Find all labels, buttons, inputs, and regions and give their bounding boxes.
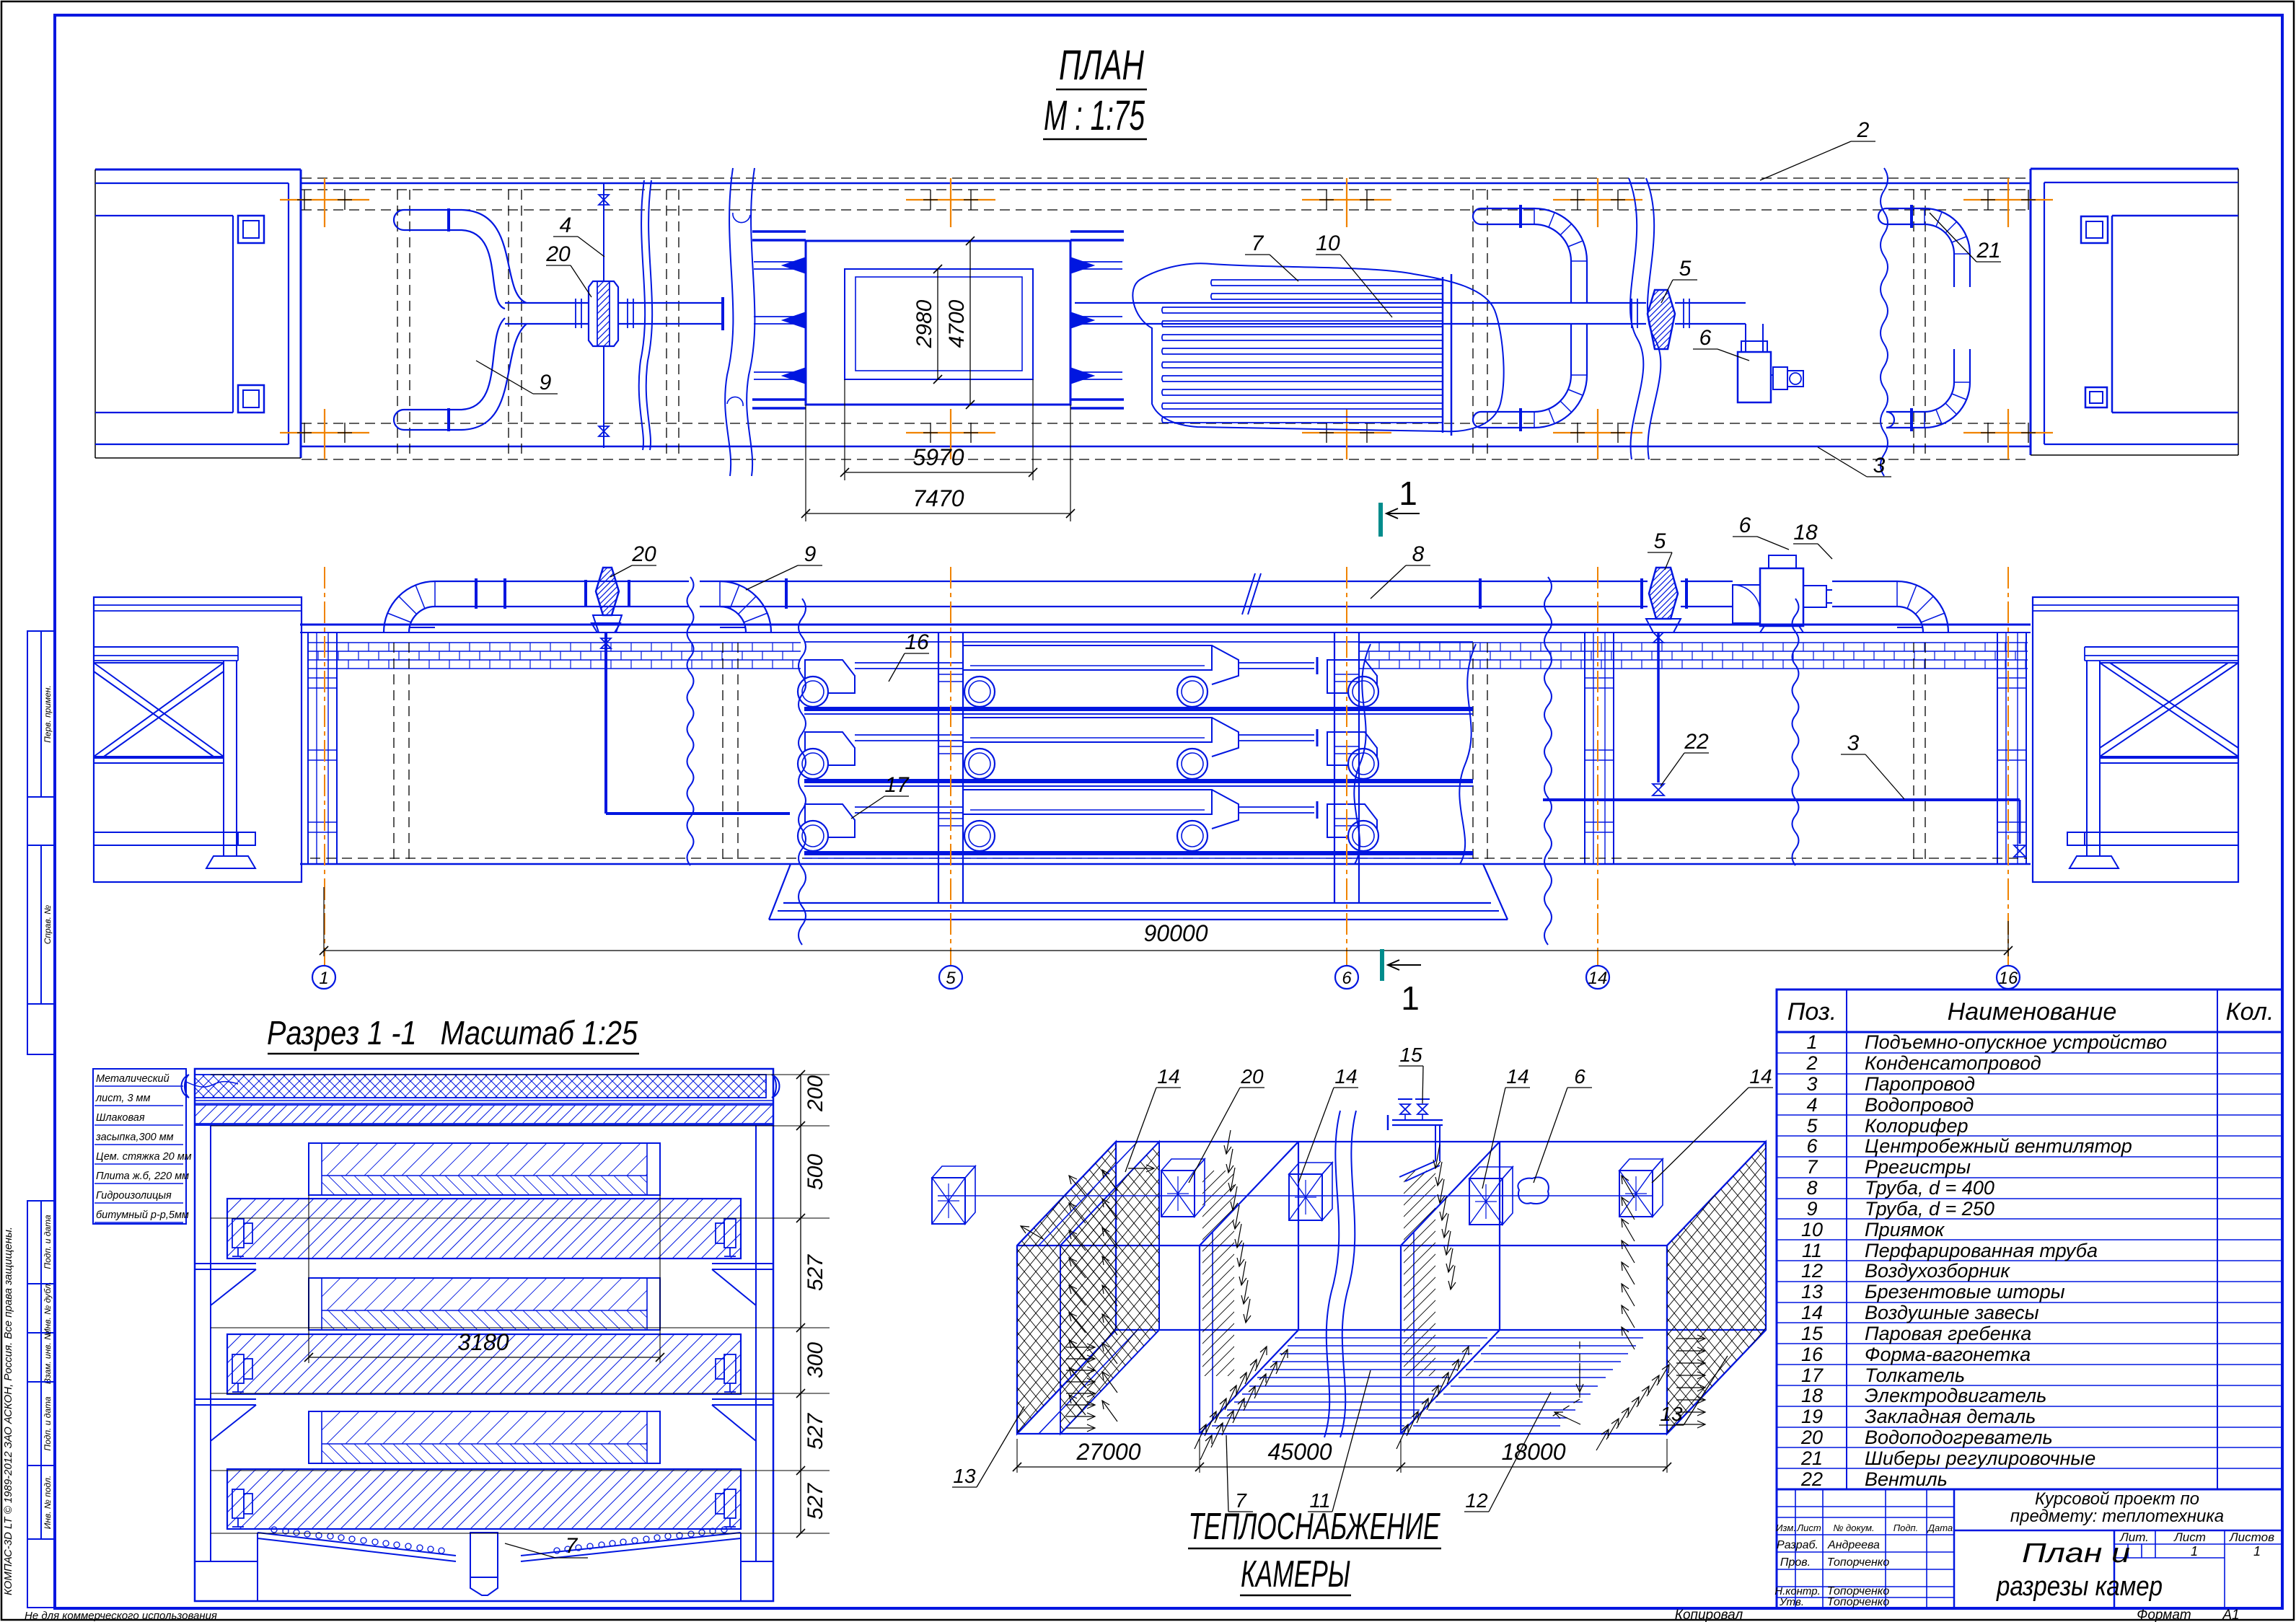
svg-text:18: 18 bbox=[1801, 1385, 1823, 1406]
svg-text:Изм.: Изм. bbox=[1776, 1522, 1796, 1533]
svg-text:Разрез 1 -1 Масштаб 1:25: Разрез 1 -1 Масштаб 1:25 bbox=[267, 1014, 638, 1052]
svg-text:ТЕПЛОСНАБЖЕНИЕ: ТЕПЛОСНАБЖЕНИЕ bbox=[1189, 1506, 1441, 1548]
svg-text:500: 500 bbox=[804, 1154, 827, 1190]
svg-text:16: 16 bbox=[1999, 969, 2018, 988]
svg-text:Взам. инв. №: Взам. инв. № bbox=[43, 1331, 53, 1384]
svg-text:18: 18 bbox=[1793, 521, 1818, 545]
svg-text:Дата: Дата bbox=[1927, 1522, 1953, 1533]
svg-text:13: 13 bbox=[953, 1465, 976, 1487]
svg-text:Цем. стяжка 20 мм: Цем. стяжка 20 мм bbox=[96, 1151, 192, 1163]
svg-text:Вентиль: Вентиль bbox=[1865, 1468, 1948, 1490]
svg-text:Колорифер: Колорифер bbox=[1865, 1115, 1969, 1137]
svg-text:14: 14 bbox=[1588, 969, 1608, 988]
svg-text:22: 22 bbox=[1684, 730, 1709, 754]
svg-text:20: 20 bbox=[631, 542, 656, 566]
svg-text:6: 6 bbox=[1739, 514, 1751, 537]
svg-text:9: 9 bbox=[804, 542, 817, 566]
svg-text:1: 1 bbox=[319, 969, 328, 988]
svg-text:2980: 2980 bbox=[912, 299, 936, 348]
svg-text:Инв. № подл.: Инв. № подл. bbox=[43, 1476, 53, 1529]
svg-text:6: 6 bbox=[1574, 1065, 1585, 1088]
svg-text:Инв. № дубл.: Инв. № дубл. bbox=[43, 1282, 53, 1335]
svg-text:12: 12 bbox=[1801, 1260, 1823, 1282]
svg-text:Закладная деталь: Закладная деталь bbox=[1865, 1406, 2036, 1427]
svg-text:Форма-вагонетка: Форма-вагонетка bbox=[1865, 1344, 2031, 1365]
svg-text:6: 6 bbox=[1342, 969, 1352, 988]
svg-text:разрезы камер: разрезы камер bbox=[1996, 1572, 2163, 1602]
svg-text:14: 14 bbox=[1801, 1302, 1823, 1323]
svg-text:КАМЕРЫ: КАМЕРЫ bbox=[1241, 1553, 1350, 1595]
svg-text:План и: План и bbox=[2022, 1538, 2130, 1569]
svg-text:20: 20 bbox=[1240, 1065, 1264, 1088]
svg-text:10: 10 bbox=[1801, 1219, 1823, 1240]
svg-text:2: 2 bbox=[1857, 118, 1870, 142]
svg-text:5: 5 bbox=[1654, 529, 1666, 553]
svg-text:14: 14 bbox=[1157, 1065, 1179, 1088]
svg-text:Брезентовые шторы: Брезентовые шторы bbox=[1865, 1281, 2065, 1303]
svg-text:17: 17 bbox=[1801, 1365, 1824, 1386]
svg-text:9: 9 bbox=[1806, 1198, 1817, 1220]
svg-text:21: 21 bbox=[1976, 239, 2000, 263]
svg-text:1: 1 bbox=[2253, 1544, 2261, 1559]
svg-text:Лист: Лист bbox=[2173, 1530, 2206, 1544]
svg-text:20: 20 bbox=[545, 242, 571, 266]
svg-text:527: 527 bbox=[804, 1413, 827, 1450]
svg-text:3: 3 bbox=[1806, 1073, 1817, 1095]
svg-text:7: 7 bbox=[1235, 1489, 1247, 1512]
svg-text:10: 10 bbox=[1316, 232, 1340, 255]
svg-text:Приямок: Приямок bbox=[1865, 1219, 1945, 1240]
svg-text:Толкатель: Толкатель bbox=[1865, 1365, 1965, 1386]
svg-text:Воздухозборник: Воздухозборник bbox=[1865, 1260, 2010, 1282]
svg-text:Копировал: Копировал bbox=[1675, 1608, 1743, 1622]
svg-text:200: 200 bbox=[804, 1075, 827, 1112]
svg-text:11: 11 bbox=[1802, 1240, 1822, 1261]
svg-text:527: 527 bbox=[804, 1483, 827, 1520]
svg-text:КОМПАС-3D LT © 1989-2012 ЗАО А: КОМПАС-3D LT © 1989-2012 ЗАО АСКОН, Росс… bbox=[2, 1227, 14, 1595]
svg-text:Утв.: Утв. bbox=[1779, 1596, 1804, 1608]
svg-text:Справ. №: Справ. № bbox=[43, 905, 53, 945]
svg-text:11: 11 bbox=[1309, 1489, 1330, 1512]
svg-text:7470: 7470 bbox=[912, 485, 964, 511]
svg-text:13: 13 bbox=[1801, 1281, 1823, 1303]
svg-text:3: 3 bbox=[1847, 731, 1860, 755]
svg-text:Перфарированная труба: Перфарированная труба bbox=[1865, 1240, 2098, 1261]
svg-text:14: 14 bbox=[1334, 1065, 1357, 1088]
svg-text:Лит.: Лит. bbox=[2119, 1530, 2149, 1544]
svg-text:А1: А1 bbox=[2222, 1608, 2239, 1622]
svg-text:1: 1 bbox=[1401, 979, 1420, 1017]
svg-text:6: 6 bbox=[1806, 1135, 1818, 1157]
svg-text:Топорченко: Топорченко bbox=[1827, 1596, 1890, 1608]
svg-text:2: 2 bbox=[1805, 1052, 1817, 1074]
svg-text:7: 7 bbox=[1252, 232, 1264, 255]
svg-text:4: 4 bbox=[560, 213, 572, 237]
svg-text:лист, 3 мм: лист, 3 мм bbox=[95, 1093, 150, 1104]
svg-text:Подп. и дата: Подп. и дата bbox=[43, 1215, 53, 1269]
svg-text:300: 300 bbox=[804, 1342, 827, 1378]
svg-text:Перв. примен.: Перв. примен. bbox=[43, 685, 53, 743]
svg-text:21: 21 bbox=[1800, 1447, 1823, 1469]
svg-text:Наименование: Наименование bbox=[1948, 998, 2117, 1026]
svg-text:Водоподогреватель: Водоподогреватель bbox=[1865, 1427, 2053, 1448]
svg-text:Водопровод: Водопровод bbox=[1865, 1094, 1974, 1116]
svg-text:16: 16 bbox=[905, 630, 929, 654]
svg-text:16: 16 bbox=[1801, 1344, 1824, 1365]
svg-text:Шлаковая: Шлаковая bbox=[96, 1112, 145, 1124]
svg-text:Центробежный вентилятор: Центробежный вентилятор bbox=[1865, 1135, 2132, 1157]
svg-text:1: 1 bbox=[2191, 1544, 2198, 1559]
svg-text:14: 14 bbox=[1749, 1065, 1772, 1088]
svg-text:Гидроизолицыя: Гидроизолицыя bbox=[96, 1190, 172, 1202]
svg-text:Подъемно-опускное устройство: Подъемно-опускное устройство bbox=[1865, 1031, 2167, 1053]
svg-text:Поз.: Поз. bbox=[1787, 998, 1837, 1026]
svg-text:№ докум.: № докум. bbox=[1833, 1522, 1874, 1533]
svg-text:18000: 18000 bbox=[1502, 1439, 1566, 1465]
svg-text:битумный р-р,5мм: битумный р-р,5мм bbox=[96, 1209, 189, 1221]
svg-text:8: 8 bbox=[1806, 1177, 1817, 1199]
svg-text:19: 19 bbox=[1801, 1406, 1823, 1427]
svg-text:90000: 90000 bbox=[1144, 920, 1208, 946]
svg-text:засыпка,300 мм: засыпка,300 мм bbox=[95, 1132, 174, 1143]
svg-text:1: 1 bbox=[1806, 1031, 1817, 1053]
svg-text:Пров.: Пров. bbox=[1780, 1556, 1811, 1569]
svg-text:Паропровод: Паропровод bbox=[1865, 1073, 1975, 1095]
svg-text:Курсовой проект по: Курсовой проект по bbox=[2035, 1489, 2199, 1509]
svg-text:27000: 27000 bbox=[1076, 1439, 1141, 1465]
svg-text:Топорченко: Топорченко bbox=[1827, 1556, 1890, 1569]
svg-text:13: 13 bbox=[1660, 1403, 1683, 1425]
svg-text:7: 7 bbox=[1806, 1156, 1818, 1178]
svg-text:8: 8 bbox=[1412, 542, 1425, 566]
svg-text:Подп. и дата: Подп. и дата bbox=[43, 1396, 53, 1450]
svg-text:Труба, d = 250: Труба, d = 250 bbox=[1865, 1198, 1994, 1220]
svg-text:45000: 45000 bbox=[1268, 1439, 1332, 1465]
svg-text:Электродвигатель: Электродвигатель bbox=[1865, 1385, 2046, 1406]
svg-text:Разраб.: Разраб. bbox=[1777, 1539, 1818, 1551]
svg-text:Воздушные завесы: Воздушные завесы bbox=[1865, 1302, 2039, 1323]
svg-text:3: 3 bbox=[1873, 454, 1886, 477]
svg-text:Труба, d = 400: Труба, d = 400 bbox=[1865, 1177, 1994, 1199]
svg-text:Листов: Листов bbox=[2229, 1530, 2274, 1544]
svg-text:20: 20 bbox=[1800, 1427, 1823, 1448]
svg-text:4700: 4700 bbox=[945, 299, 969, 348]
svg-text:5: 5 bbox=[1806, 1115, 1818, 1137]
svg-text:6: 6 bbox=[1699, 326, 1712, 350]
svg-text:7: 7 bbox=[566, 1534, 579, 1558]
svg-text:Металический: Металический bbox=[96, 1073, 170, 1085]
svg-text:12: 12 bbox=[1465, 1489, 1488, 1512]
svg-text:Не для коммерческого использов: Не для коммерческого использования bbox=[25, 1610, 217, 1622]
svg-text:5970: 5970 bbox=[912, 444, 964, 470]
svg-text:ПЛАН: ПЛАН bbox=[1059, 42, 1144, 89]
svg-text:9: 9 bbox=[540, 371, 552, 395]
svg-text:4: 4 bbox=[1806, 1094, 1817, 1116]
svg-text:Андреева: Андреева bbox=[1827, 1539, 1880, 1551]
svg-text:3180: 3180 bbox=[457, 1329, 509, 1355]
svg-text:Кол.: Кол. bbox=[2226, 998, 2274, 1026]
svg-text:14: 14 bbox=[1506, 1065, 1529, 1088]
svg-text:527: 527 bbox=[804, 1254, 827, 1291]
svg-text:5: 5 bbox=[946, 969, 956, 988]
svg-text:предмету: теплотехника: предмету: теплотехника bbox=[2010, 1507, 2224, 1526]
svg-text:Подп.: Подп. bbox=[1893, 1522, 1919, 1533]
svg-text:17: 17 bbox=[884, 773, 910, 797]
svg-text:1: 1 bbox=[1399, 475, 1417, 512]
svg-text:Плита ж.б, 220 мм: Плита ж.б, 220 мм bbox=[96, 1171, 189, 1182]
svg-text:Конденсатопровод: Конденсатопровод bbox=[1865, 1052, 2041, 1074]
svg-text:Паровая гребенка: Паровая гребенка bbox=[1865, 1323, 2031, 1344]
svg-text:Ррегистры: Ррегистры bbox=[1865, 1156, 1971, 1178]
svg-text:5: 5 bbox=[1679, 257, 1692, 281]
svg-text:15: 15 bbox=[1399, 1044, 1422, 1066]
svg-text:М : 1:75: М : 1:75 bbox=[1044, 92, 1145, 139]
svg-text:Шиберы регулировочные: Шиберы регулировочные bbox=[1865, 1447, 2095, 1469]
svg-text:Лист: Лист bbox=[1796, 1522, 1821, 1533]
svg-text:Формат: Формат bbox=[2137, 1608, 2191, 1622]
svg-text:15: 15 bbox=[1801, 1323, 1824, 1344]
svg-text:22: 22 bbox=[1800, 1468, 1823, 1490]
